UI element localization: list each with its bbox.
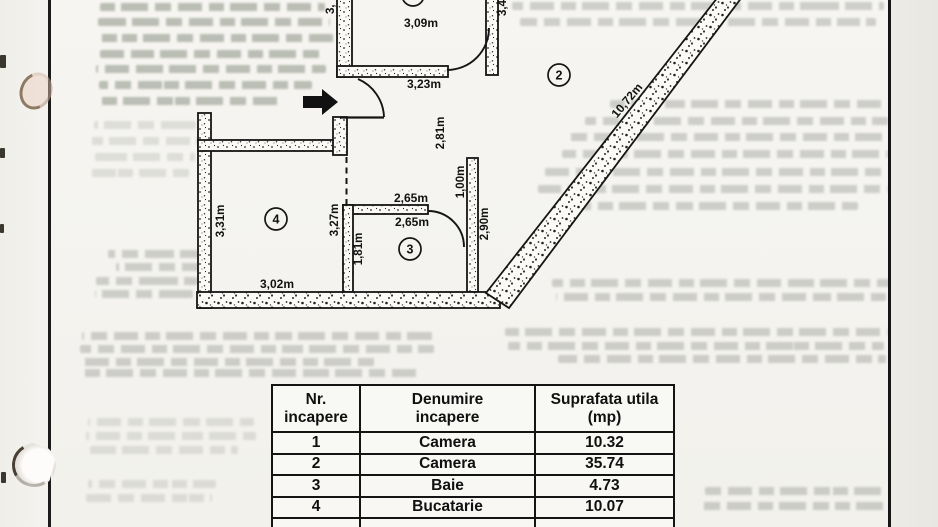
table-cell bbox=[535, 518, 674, 527]
table-row: 1Camera10.32 bbox=[272, 432, 674, 454]
edge-speck bbox=[0, 55, 6, 68]
table-row-partial bbox=[272, 518, 674, 527]
dim-hall-height: 2,81m bbox=[435, 117, 447, 150]
door-arc-room1 bbox=[447, 28, 489, 70]
table-cell: 3 bbox=[272, 475, 360, 497]
room2-number: 2 bbox=[556, 69, 563, 83]
dim-room4-bottom: 3,02m bbox=[260, 277, 294, 291]
table-cell: Bucatarie bbox=[360, 497, 535, 519]
wall-corridor-right bbox=[467, 158, 478, 292]
header-denumire-incapere: Denumire incapere bbox=[360, 385, 535, 432]
table-row: 2Camera35.74 bbox=[272, 454, 674, 476]
header-nr-incapere: Nr. incapere bbox=[272, 385, 360, 432]
table-cell: 4.73 bbox=[535, 475, 674, 497]
dim-room1-left-partial: 3, bbox=[325, 4, 337, 14]
edge-speck bbox=[0, 148, 5, 158]
room-table-body: 1Camera10.322Camera35.743Baie4.734Bucata… bbox=[272, 432, 674, 527]
edge-speck bbox=[1, 472, 6, 483]
door-arc-room3 bbox=[428, 211, 464, 247]
table-cell: 1 bbox=[272, 432, 360, 454]
table-cell: Baie bbox=[360, 475, 535, 497]
room4-number: 4 bbox=[273, 213, 280, 227]
table-cell bbox=[360, 518, 535, 527]
right-page-margin bbox=[891, 0, 938, 527]
wall-bottom bbox=[197, 292, 500, 308]
table-cell: 10.07 bbox=[535, 497, 674, 519]
edge-speck bbox=[0, 224, 4, 233]
dim-room1-right-partial: 3,4 bbox=[497, 0, 509, 16]
wall-entry-pillar bbox=[333, 117, 347, 155]
table-row: 4Bucatarie10.07 bbox=[272, 497, 674, 519]
entry-door-arc bbox=[358, 79, 384, 117]
table-row: 3Baie4.73 bbox=[272, 475, 674, 497]
wall-diagonal bbox=[486, 0, 742, 308]
table-cell: Camera bbox=[360, 432, 535, 454]
table-cell: 10.32 bbox=[535, 432, 674, 454]
header-suprafata-utila: Suprafata utila (mp) bbox=[535, 385, 674, 432]
scanned-floor-plan-page: 2 3 4 3,09m 3,23m 2,65m 2,65m 3,02m 3,31… bbox=[0, 0, 938, 527]
dim-room1-bottom: 3,23m bbox=[407, 77, 441, 91]
dim-room1-width: 3,09m bbox=[404, 16, 438, 30]
dim-room3-left: 1,81m bbox=[353, 233, 365, 266]
table-cell bbox=[272, 518, 360, 527]
wall-room3-left bbox=[343, 205, 353, 292]
dim-room4-left: 3,31m bbox=[215, 205, 227, 238]
wall-room1-bottom bbox=[337, 66, 448, 77]
room3-number: 3 bbox=[407, 243, 414, 257]
wall-room3-top bbox=[343, 205, 428, 214]
table-cell: 4 bbox=[272, 497, 360, 519]
dim-corridor-right: 2,90m bbox=[479, 208, 491, 241]
table-header-row: Nr. incapere Denumire incapere Suprafata… bbox=[272, 385, 674, 432]
entrance-arrow-icon bbox=[303, 89, 338, 115]
dim-room3-top-b: 2,65m bbox=[395, 215, 429, 229]
dim-corridor-upper: 1,00m bbox=[455, 166, 467, 199]
table-cell: 2 bbox=[272, 454, 360, 476]
room-area-table: Nr. incapere Denumire incapere Suprafata… bbox=[271, 384, 675, 527]
dim-room3-top-a: 2,65m bbox=[394, 191, 428, 205]
table-cell: 35.74 bbox=[535, 454, 674, 476]
wall-room4-top bbox=[198, 140, 346, 151]
table-cell: Camera bbox=[360, 454, 535, 476]
walls bbox=[197, 0, 742, 308]
room1-badge-partial bbox=[402, 0, 424, 6]
dim-room4-right: 3,27m bbox=[329, 204, 341, 237]
right-rule-line bbox=[888, 0, 891, 527]
